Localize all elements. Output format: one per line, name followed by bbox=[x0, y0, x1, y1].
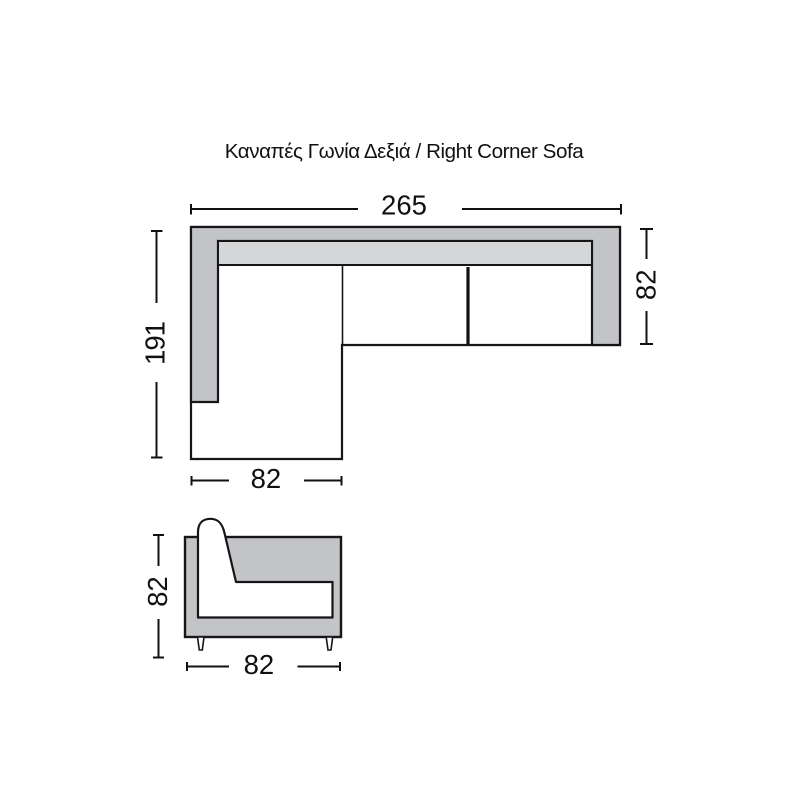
svg-text:82: 82 bbox=[142, 576, 173, 607]
svg-text:82: 82 bbox=[631, 270, 662, 301]
svg-text:Καναπές Γωνία Δεξιά / Right Co: Καναπές Γωνία Δεξιά / Right Corner Sofa bbox=[225, 140, 584, 163]
svg-text:82: 82 bbox=[251, 463, 282, 494]
svg-text:265: 265 bbox=[381, 190, 427, 221]
svg-text:82: 82 bbox=[244, 649, 275, 680]
svg-text:191: 191 bbox=[140, 322, 171, 365]
